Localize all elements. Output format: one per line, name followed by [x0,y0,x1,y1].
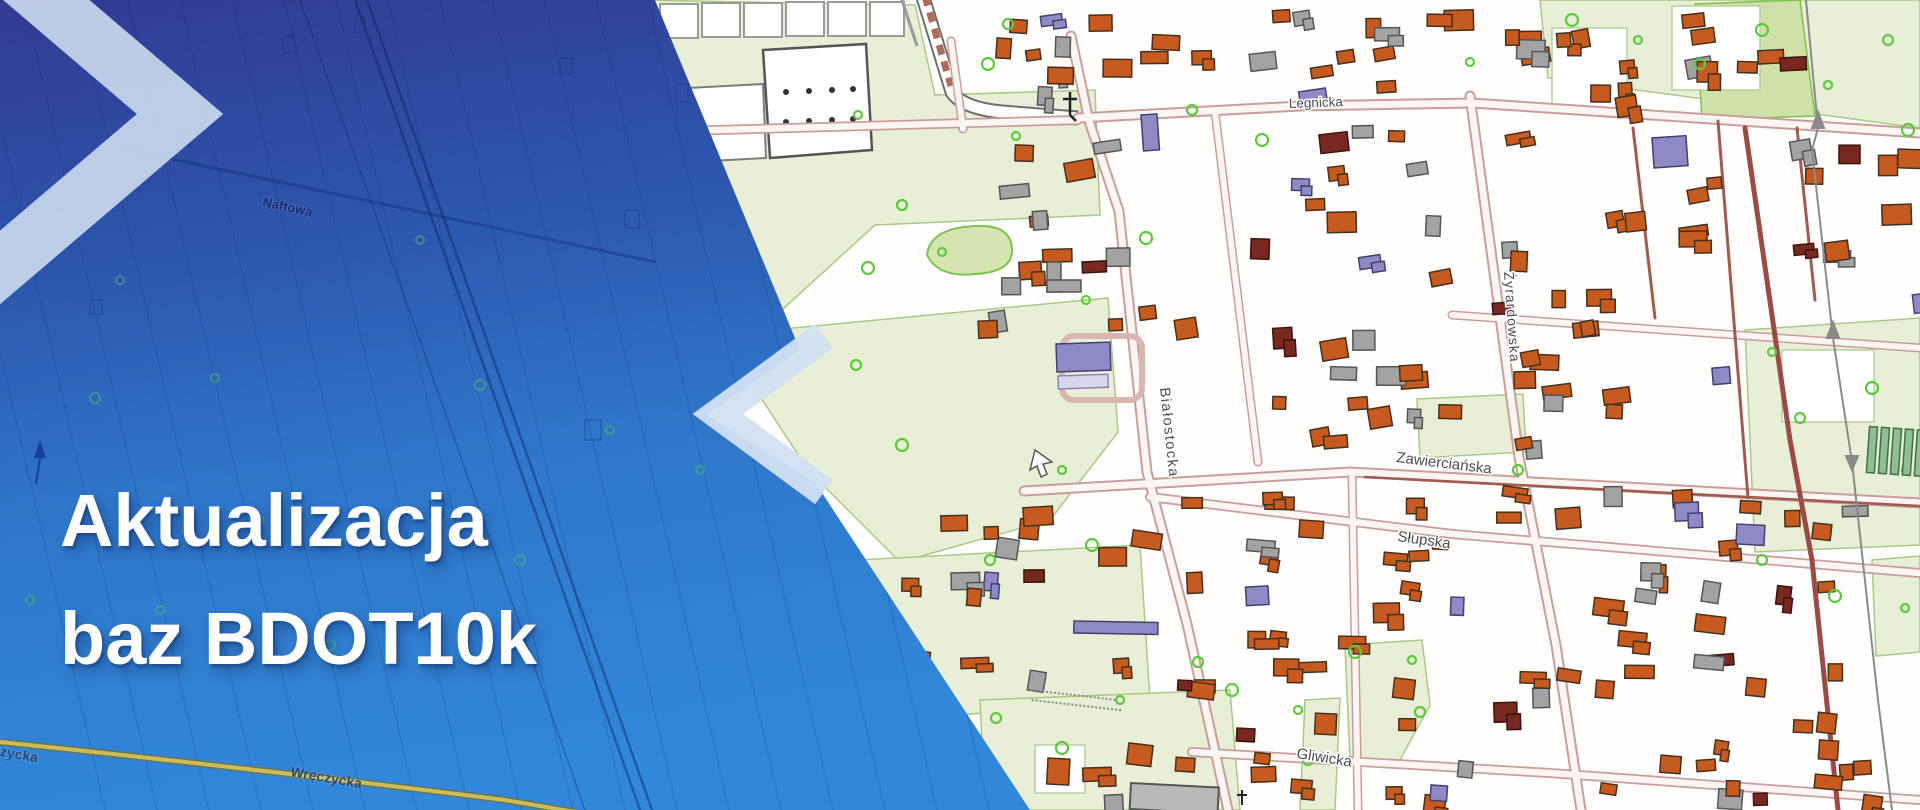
building [1533,688,1550,708]
building [1099,548,1127,567]
building [1544,395,1563,411]
building [1555,507,1581,529]
building [1426,216,1441,237]
building [1249,51,1277,71]
banner-title-line2: baz BDOT10k [60,580,537,698]
building [1427,14,1452,26]
building [1377,81,1396,94]
building [1026,49,1041,61]
building [1023,506,1053,526]
building [1174,317,1198,340]
landmark-building [1047,758,1070,785]
building [1816,712,1837,734]
building [1814,774,1842,790]
building [1793,720,1812,733]
building [1126,743,1153,767]
building [1048,67,1074,84]
building [1818,740,1838,760]
building [1015,145,1034,162]
building [1785,510,1800,526]
building [1141,51,1168,63]
building [1707,177,1722,189]
building [1299,520,1324,538]
building [1430,785,1448,802]
building [1625,665,1654,678]
building [1327,212,1356,233]
building [1854,760,1872,775]
building [1842,506,1868,517]
building [1552,291,1565,308]
building [1353,330,1375,350]
building [1399,365,1422,382]
building [1106,248,1130,267]
banner-hero: Legnicka Białostocka Żyrardowska Zawierc… [0,0,1920,810]
building [1310,65,1333,79]
building [1514,371,1536,388]
building [1104,794,1123,810]
building [1812,523,1832,541]
building [1392,678,1415,700]
building [978,320,998,338]
industrial-building [763,44,872,158]
building [1580,320,1596,337]
building [1315,713,1337,735]
building [1557,668,1582,683]
building [1089,15,1112,31]
building [1330,367,1356,381]
building [1032,211,1048,231]
building [1745,677,1766,697]
building [1323,435,1347,449]
building [1024,570,1044,582]
building [1457,761,1473,778]
building [1251,766,1276,782]
building [1828,664,1842,681]
building [1595,680,1614,699]
building [1515,437,1533,451]
building [1320,338,1349,361]
building [984,527,999,540]
building [1250,239,1269,260]
building [1682,13,1705,29]
building [1182,498,1202,509]
building [1336,49,1355,64]
landmark-building [1652,136,1688,168]
building [1109,319,1123,331]
building [1319,132,1349,154]
building [1272,10,1290,23]
landmark-building [1058,374,1108,389]
building [1055,37,1070,57]
building [1367,406,1392,429]
landmark-building [1450,597,1464,615]
building [1604,487,1622,507]
building [1696,759,1715,772]
building [1439,405,1462,419]
building [1606,404,1623,418]
building [1694,654,1725,670]
building [1497,512,1521,523]
banner-title-line1: Aktualizacja [60,462,537,580]
building [1373,46,1395,62]
building [995,537,1019,560]
building [1139,305,1157,320]
building [1246,586,1269,606]
building [941,515,968,531]
building [966,588,981,606]
building [1557,33,1571,48]
building [1898,149,1920,169]
building [1600,783,1617,796]
building [1740,500,1761,514]
building [1406,161,1428,176]
landmark-building [1736,524,1765,545]
building [1409,550,1429,561]
landmark-building [1056,342,1111,372]
building [1187,572,1203,594]
landmark-building [1177,680,1192,691]
building [1694,614,1726,635]
building [1002,278,1021,295]
building [1879,155,1898,175]
building [996,38,1012,59]
building [1660,755,1682,774]
building [1254,752,1270,764]
building [1429,269,1452,287]
building [1131,530,1163,551]
building [1510,251,1527,272]
building [1388,131,1404,142]
building [1687,187,1709,204]
building [1064,159,1096,183]
building [1254,639,1279,650]
street-label-legnicka: Legnicka [1289,94,1344,111]
building [1352,125,1373,138]
landmark-building [1082,261,1107,273]
building [1043,249,1073,263]
building [1839,145,1860,163]
building [1603,387,1631,405]
building [1103,59,1132,77]
building [1348,397,1368,411]
landmark-building [1074,621,1158,634]
building [1635,588,1657,604]
building [1273,396,1286,409]
building [1175,757,1195,772]
building [1712,367,1731,385]
building [999,184,1030,200]
building [1691,27,1716,45]
landmark-building [1780,57,1807,71]
building [1737,61,1757,73]
building [1701,581,1721,604]
building [1625,211,1647,232]
building [1306,199,1325,211]
landmark-building [1141,114,1159,151]
building [1912,293,1920,313]
building [1824,240,1849,262]
building [1506,30,1520,45]
building [1152,35,1180,51]
building [1591,85,1611,102]
building [1726,781,1740,797]
building [1860,794,1885,810]
landmark-building [1236,728,1255,742]
building [1399,719,1416,731]
building [1753,793,1767,805]
building [1882,204,1912,225]
banner-title: Aktualizacja baz BDOT10k [60,462,537,698]
